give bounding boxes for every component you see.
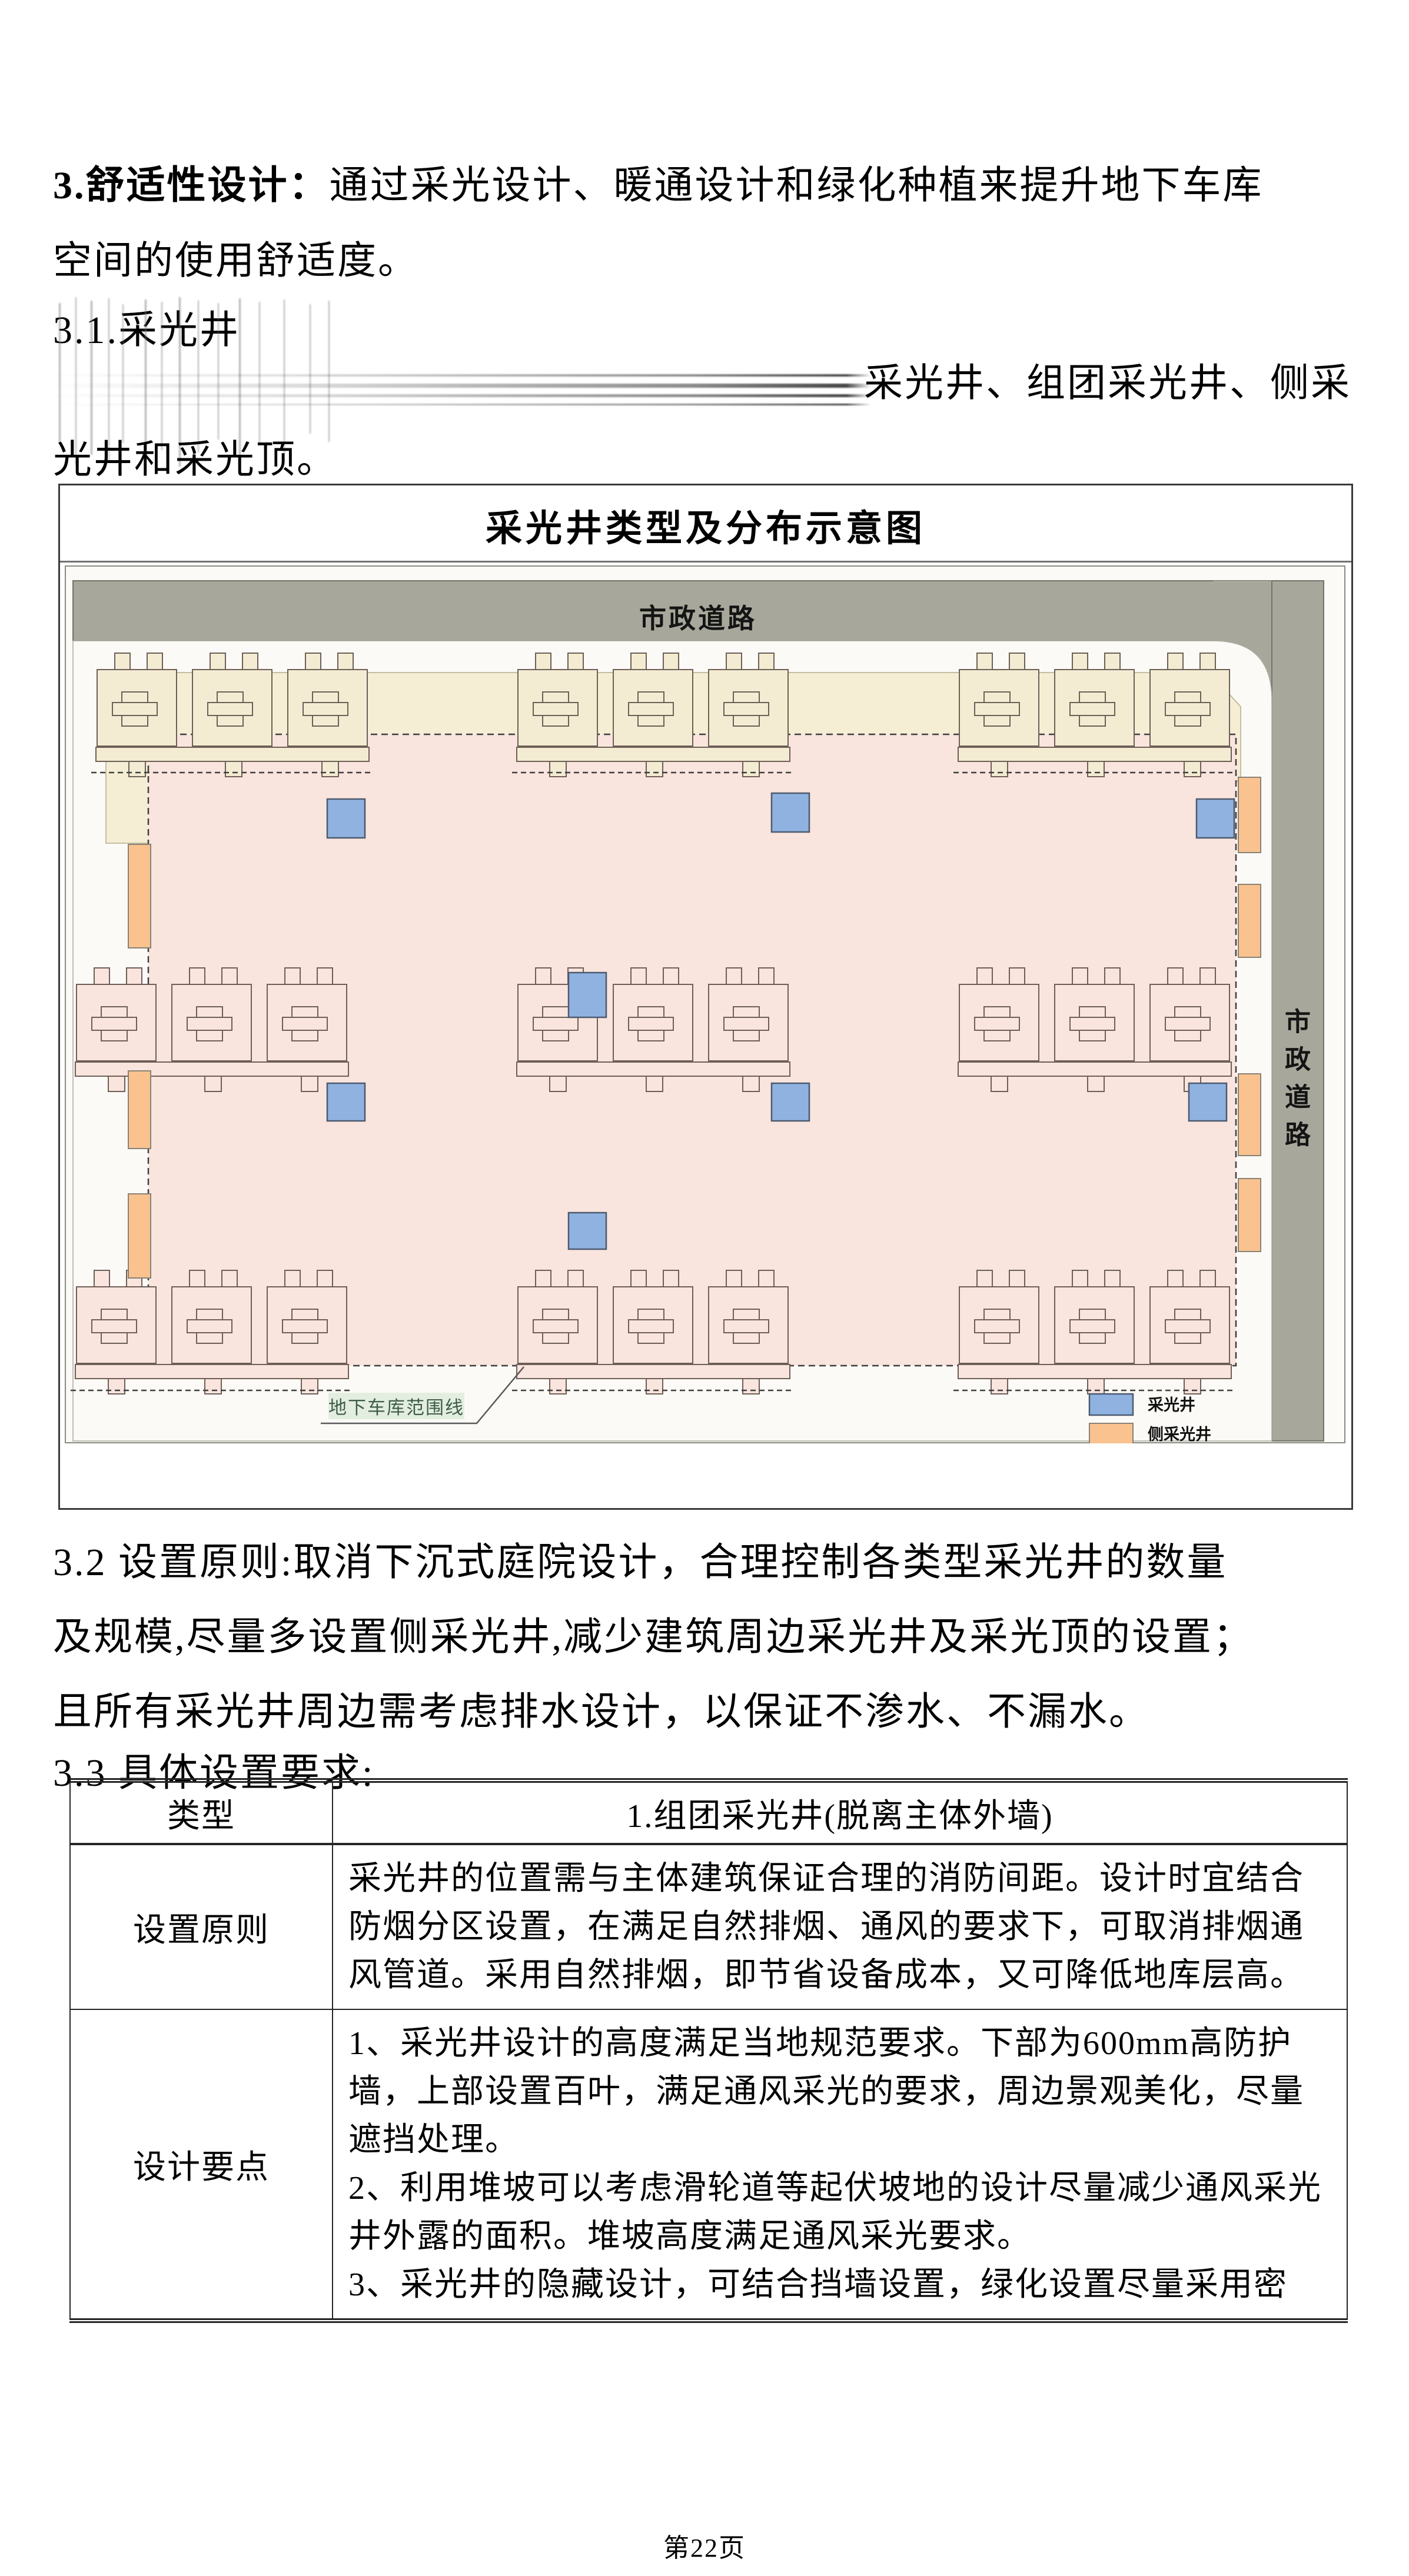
table-row: 设计要点 1、采光井设计的高度满足当地规范要求。下部为600mm高防护墙，上部设… — [70, 2009, 1347, 2321]
side-lightwell-marker — [1238, 777, 1261, 853]
figure-title-divider — [60, 561, 1351, 563]
side-lightwell-marker — [1238, 884, 1261, 957]
lightwell-marker — [569, 973, 606, 1017]
legend-swatch-lightwell — [1089, 1394, 1133, 1415]
side-lightwell-marker — [1238, 1179, 1261, 1252]
building-cluster — [958, 968, 1231, 1091]
building-cluster — [96, 653, 369, 777]
requirements-table: 类型 1.组团采光井(脱离主体外墙) 设置原则 采光井的位置需与主体建筑保证合理… — [69, 1778, 1348, 2323]
section-32-line1: 3.2 设置原则:取消下沉式庭院设计，合理控制各类型采光井的数量 — [53, 1525, 1383, 1600]
section-32-paragraph: 3.2 设置原则:取消下沉式庭院设计，合理控制各类型采光井的数量 及规模,尽量多… — [53, 1525, 1383, 1749]
building-cluster — [517, 653, 790, 777]
table-header-type: 类型 — [70, 1780, 333, 1844]
building-cluster — [958, 1270, 1231, 1394]
legend-label-side-lightwell: 侧采光井 — [1148, 1423, 1211, 1445]
table-header-row: 类型 1.组团采光井(脱离主体外墙) — [70, 1780, 1347, 1844]
lightwell-distribution-figure: 采光井类型及分布示意图 — [58, 484, 1353, 1510]
building-cluster — [517, 1270, 790, 1394]
garage-boundary-label: 地下车库范围线 — [328, 1393, 464, 1419]
section-3-line2: 空间的使用舒适度。 — [53, 224, 1383, 299]
building-cluster — [958, 653, 1231, 777]
lightwell-marker — [327, 1083, 365, 1121]
page-footer: 第22页 — [0, 2527, 1409, 2564]
table-header-title: 1.组团采光井(脱离主体外墙) — [333, 1780, 1347, 1844]
lightwell-marker — [1197, 799, 1234, 838]
legend-swatch-side-lightwell — [1089, 1423, 1133, 1443]
side-lightwell-marker — [128, 844, 151, 948]
table-row: 设置原则 采光井的位置需与主体建筑保证合理的消防间距。设计时宜结合防烟分区设置，… — [70, 1844, 1347, 2009]
figure-title: 采光井类型及分布示意图 — [60, 498, 1351, 551]
row-label-design-points: 设计要点 — [70, 2009, 333, 2321]
site-plan-map: 市政道路 市政道路 采光井 侧采光井 地下车库范围线 — [65, 565, 1345, 1443]
section-3-paragraph: 3.舒适性设计：通过采光设计、暖通设计和绿化种植来提升地下车库 空间的使用舒适度… — [53, 148, 1383, 299]
side-lightwell-marker — [1238, 1074, 1261, 1156]
row-label-setting-principle: 设置原则 — [70, 1844, 333, 2009]
road-top-label: 市政道路 — [73, 597, 1323, 636]
legend-label-lightwell: 采光井 — [1148, 1394, 1195, 1415]
lightwell-marker — [772, 1083, 809, 1121]
section-3-heading: 3.舒适性设计： — [53, 164, 330, 207]
side-lightwell-marker — [128, 1194, 151, 1278]
lightwell-marker — [569, 1213, 606, 1249]
section-3-line1: 3.舒适性设计：通过采光设计、暖通设计和绿化种植来提升地下车库 — [53, 148, 1383, 224]
lightwell-marker — [327, 799, 365, 838]
corrupted-line-visible-text: 采光井、组团采光井、侧采 — [864, 346, 1351, 421]
road-right-label: 市政道路 — [1276, 1008, 1314, 1159]
lightwell-marker — [1189, 1083, 1227, 1121]
scan-artifact-horizontal-smear — [53, 352, 871, 417]
cell-setting-principle: 采光井的位置需与主体建筑保证合理的消防间距。设计时宜结合防烟分区设置，在满足自然… — [333, 1844, 1347, 2009]
building-cluster — [75, 968, 348, 1091]
building-cluster — [75, 1270, 348, 1394]
document-page: 3.舒适性设计：通过采光设计、暖通设计和绿化种植来提升地下车库 空间的使用舒适度… — [0, 0, 1409, 2576]
lightwell-marker — [772, 793, 809, 832]
section-3-line1-rest: 通过采光设计、暖通设计和绿化种植来提升地下车库 — [330, 164, 1264, 207]
section-32-line2: 及规模,尽量多设置侧采光井,减少建筑周边采光井及采光顶的设置； — [53, 1600, 1383, 1675]
site-plan-drawing — [65, 565, 1345, 1443]
cell-design-points: 1、采光井设计的高度满足当地规范要求。下部为600mm高防护墙，上部设置百叶，满… — [333, 2009, 1347, 2321]
building-cluster — [517, 968, 790, 1091]
side-lightwell-marker — [128, 1071, 151, 1149]
